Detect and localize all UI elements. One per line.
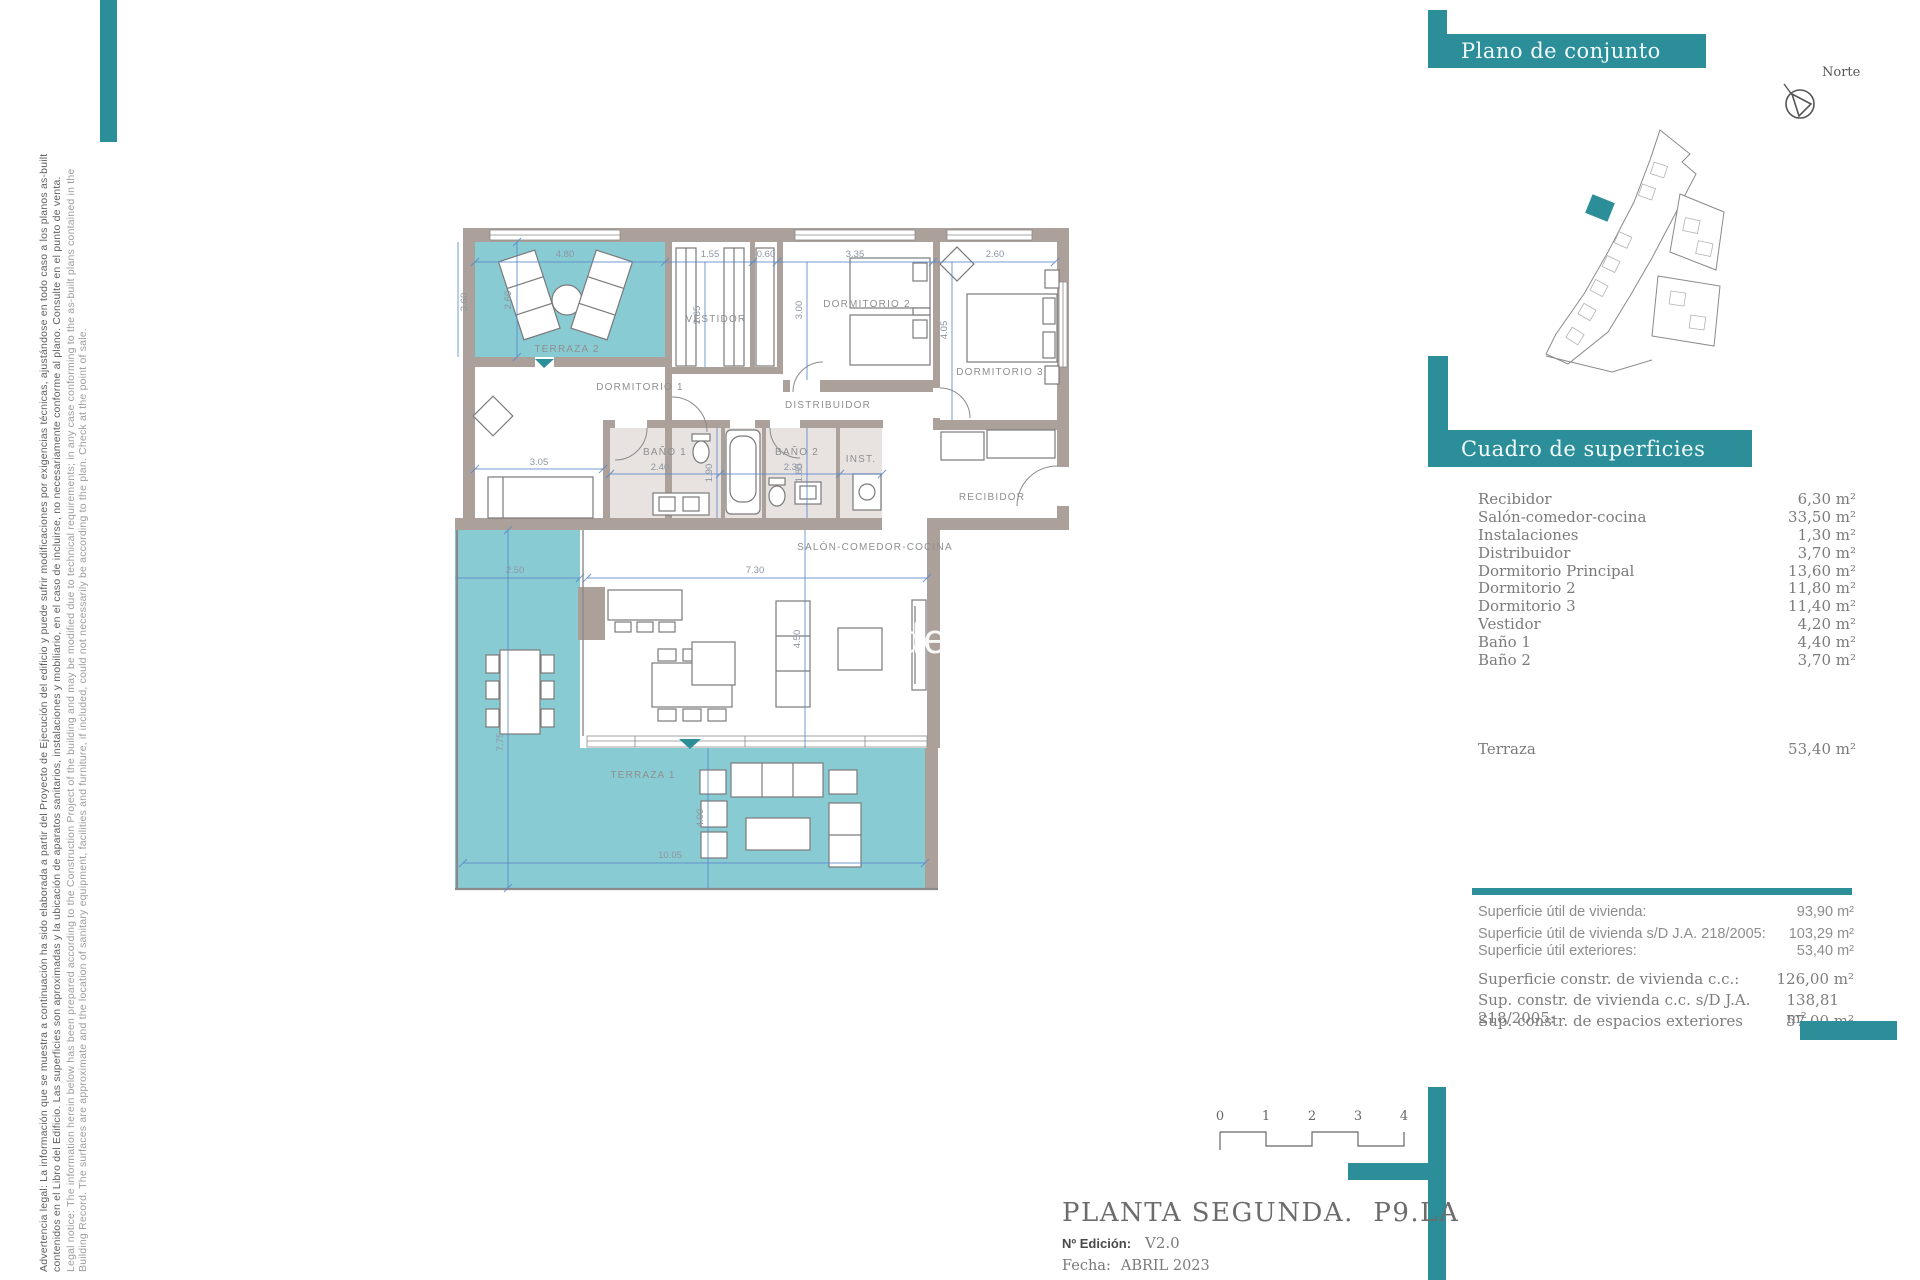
surface-label: Recibidor	[1478, 490, 1552, 508]
surface-value: 3,70 m²	[1798, 544, 1856, 562]
scale-bar: 0 1 2 3 4	[1214, 1104, 1424, 1164]
surface-row: Vestidor4,20 m²	[1478, 615, 1856, 633]
total-row: Sup. constr. de vivienda c.c. s/D J.A. 2…	[1478, 991, 1854, 1012]
dim-salon-width: 7.30	[746, 565, 765, 576]
dim-bano2-height: 1.80	[794, 464, 805, 483]
surface-row: Dormitorio 311,40 m²	[1478, 597, 1856, 615]
surface-row: Baño 14,40 m²	[1478, 633, 1856, 651]
total-value: 126,00 m²	[1777, 970, 1855, 991]
total-label: Sup. constr. de espacios exteriores	[1478, 1012, 1743, 1033]
overview-panel-title: Plano de conjunto	[1461, 39, 1661, 63]
corner-accent-bar	[100, 0, 117, 142]
surface-label: Dormitorio 3	[1478, 597, 1576, 615]
surface-value: 13,60 m²	[1788, 562, 1856, 580]
dim-dorm2-height: 3.00	[794, 301, 805, 320]
total-row: Superficie útil de vivienda s/D J.A. 218…	[1478, 926, 1854, 944]
room-label-dorm3: DORMITORIO 3	[956, 367, 1044, 378]
dim-terraza1-width: 2.50	[506, 565, 525, 576]
surfaces-table: Recibidor6,30 m² Salón-comedor-cocina33,…	[1478, 490, 1856, 669]
terraza-value: 53,40 m²	[1788, 740, 1856, 758]
dim-dorm2-width: 3.35	[846, 249, 865, 260]
legal-text-en-2: Building Record. The surfaces are approx…	[77, 328, 89, 1272]
scale-tick-3: 3	[1354, 1109, 1362, 1124]
north-arrow: Norte	[1778, 58, 1908, 134]
surface-value: 33,50 m²	[1788, 508, 1856, 526]
date-label: Fecha:	[1062, 1258, 1111, 1274]
bottom-accent-hbar	[1348, 1163, 1428, 1180]
floor-plan: 4.80 1.55 0.60 3.35 2.60 2.60 3.60 2.65 …	[455, 222, 1085, 902]
total-value: 138,81 m²	[1786, 991, 1854, 1012]
legal-text-es-1: Advertencia legal: La información que se…	[38, 154, 50, 1272]
room-label-dorm2: DORMITORIO 2	[823, 299, 911, 310]
terraza-label: Terraza	[1478, 740, 1536, 758]
scale-tick-4: 4	[1400, 1109, 1408, 1124]
total-row: Sup. constr. de espacios exteriores57,00…	[1478, 1012, 1854, 1033]
date-value: ABRIL 2023	[1121, 1258, 1210, 1274]
dim-terraza2-width: 4.80	[556, 249, 575, 260]
surface-label: Baño 2	[1478, 651, 1531, 669]
room-label-inst: INST.	[846, 454, 876, 465]
total-row: Superficie útil de vivienda:93,90 m²	[1478, 904, 1854, 922]
surface-row: Distribuidor3,70 m²	[1478, 544, 1856, 562]
surface-label: Salón-comedor-cocina	[1478, 508, 1646, 526]
edition-value: V2.0	[1145, 1234, 1180, 1252]
surface-value: 11,80 m²	[1788, 579, 1856, 597]
room-label-dorm1: DORMITORIO 1	[596, 382, 684, 393]
room-label-distribuidor: DISTRIBUIDOR	[785, 400, 871, 411]
dim-terraza2-height: 2.60	[503, 291, 514, 310]
room-label-terraza1: TERRAZA 1	[610, 770, 675, 781]
surface-row: Dormitorio Principal13,60 m²	[1478, 562, 1856, 580]
surface-value: 11,40 m²	[1788, 597, 1856, 615]
dim-terraza1-bottom-width: 10.05	[658, 850, 682, 861]
room-label-bano1: BAÑO 1	[643, 445, 687, 458]
surface-value: 4,40 m²	[1798, 633, 1856, 651]
north-arrow-tail	[1784, 84, 1793, 96]
total-value: 93,90 m²	[1797, 904, 1854, 922]
scale-bar-steps	[1220, 1132, 1404, 1150]
surface-label: Baño 1	[1478, 633, 1531, 651]
site-plan-highlighted-unit	[1585, 194, 1615, 222]
dim-terraza1-height: 7.75	[495, 733, 506, 752]
dim-terraza1-bottom-height: 4.00	[695, 809, 706, 828]
date-line: Fecha:ABRIL 2023	[1062, 1257, 1459, 1275]
plano-band-stub	[1428, 10, 1447, 34]
total-row: Superficie útil exteriores:53,40 m²	[1478, 943, 1854, 961]
scale-tick-0: 0	[1216, 1109, 1224, 1124]
dim-dorm3-height: 4.05	[939, 321, 950, 340]
totals-divider	[1472, 888, 1852, 895]
totals-group-constr: Superficie constr. de vivienda c.c.:126,…	[1478, 970, 1854, 1033]
room-label-terraza2: TERRAZA 2	[534, 344, 599, 355]
sheet-title: PLANTA SEGUNDA. P9.LA	[1062, 1198, 1459, 1228]
surface-label: Instalaciones	[1478, 526, 1578, 544]
surface-value: 3,70 m²	[1798, 651, 1856, 669]
overview-panel-title-band: Plano de conjunto	[1428, 34, 1706, 68]
total-label: Superficie útil de vivienda s/D J.A. 218…	[1478, 926, 1766, 944]
site-plan	[1512, 124, 1792, 386]
surface-value: 1,30 m²	[1798, 526, 1856, 544]
dim-left-height: 3.60	[459, 293, 470, 312]
totals-accent-block	[1800, 1021, 1897, 1040]
surfaces-panel-title: Cuadro de superficies	[1461, 437, 1705, 461]
surface-row: Recibidor6,30 m²	[1478, 490, 1856, 508]
edition-line: Nº Edición:V2.0	[1062, 1234, 1459, 1253]
surface-label: Distribuidor	[1478, 544, 1570, 562]
legal-text-es-2: contenidos en el Libro del Edificio. Las…	[51, 176, 63, 1272]
legal-text-en-1: Legal notice: The information herein bel…	[65, 169, 77, 1272]
site-plan-block-upper	[1670, 194, 1724, 270]
room-label-vestidor: VESTIDOR	[686, 314, 747, 325]
room-label-recibidor: RECIBIDOR	[959, 492, 1025, 503]
total-label: Superficie constr. de vivienda c.c.:	[1478, 970, 1739, 991]
terraza-row: Terraza 53,40 m²	[1478, 740, 1856, 758]
total-row: Superficie constr. de vivienda c.c.:126,…	[1478, 970, 1854, 991]
edition-label: Nº Edición:	[1062, 1236, 1131, 1251]
surface-label: Dormitorio Principal	[1478, 562, 1634, 580]
surface-row: Baño 23,70 m²	[1478, 651, 1856, 669]
total-label: Sup. constr. de vivienda c.c. s/D J.A. 2…	[1478, 991, 1786, 1012]
scale-tick-2: 2	[1308, 1109, 1316, 1124]
surface-row: Instalaciones1,30 m²	[1478, 526, 1856, 544]
north-label: Norte	[1822, 65, 1861, 80]
surface-row: Salón-comedor-cocina33,50 m²	[1478, 508, 1856, 526]
surfaces-panel-title-band: Cuadro de superficies	[1428, 430, 1752, 467]
total-value: 103,29 m²	[1789, 926, 1854, 944]
total-value: 53,40 m²	[1797, 943, 1854, 961]
surface-label: Vestidor	[1478, 615, 1541, 633]
scale-tick-1: 1	[1262, 1109, 1270, 1124]
site-plan-block-lower	[1652, 276, 1720, 346]
surface-row: Dormitorio 211,80 m²	[1478, 579, 1856, 597]
watermark: de	[898, 615, 949, 663]
north-arrow-pointer	[1792, 94, 1811, 116]
cuadro-band-stub	[1428, 356, 1448, 430]
total-label: Superficie útil exteriores:	[1478, 943, 1637, 961]
total-label: Superficie útil de vivienda:	[1478, 904, 1646, 922]
dim-vestidor-width: 1.55	[701, 249, 720, 260]
title-block: PLANTA SEGUNDA. P9.LA Nº Edición:V2.0 Fe…	[1062, 1198, 1459, 1275]
dim-dorm1-width: 3.05	[530, 457, 549, 468]
surface-value: 4,20 m²	[1798, 615, 1856, 633]
dim-salon-height: 4.50	[792, 630, 803, 649]
surface-value: 6,30 m²	[1798, 490, 1856, 508]
totals-group-util: Superficie útil de vivienda:93,90 m² Sup…	[1478, 904, 1854, 961]
dim-bano1-height: 1.90	[704, 464, 715, 483]
surface-label: Dormitorio 2	[1478, 579, 1576, 597]
dim-closet-width: 0.60	[757, 249, 776, 260]
room-label-bano2: BAÑO 2	[775, 445, 819, 458]
dim-bano1-width: 2.40	[651, 462, 670, 473]
dim-dorm3-width: 2.60	[986, 249, 1005, 260]
room-label-salon: SALÓN-COMEDOR-COCINA	[797, 540, 953, 553]
